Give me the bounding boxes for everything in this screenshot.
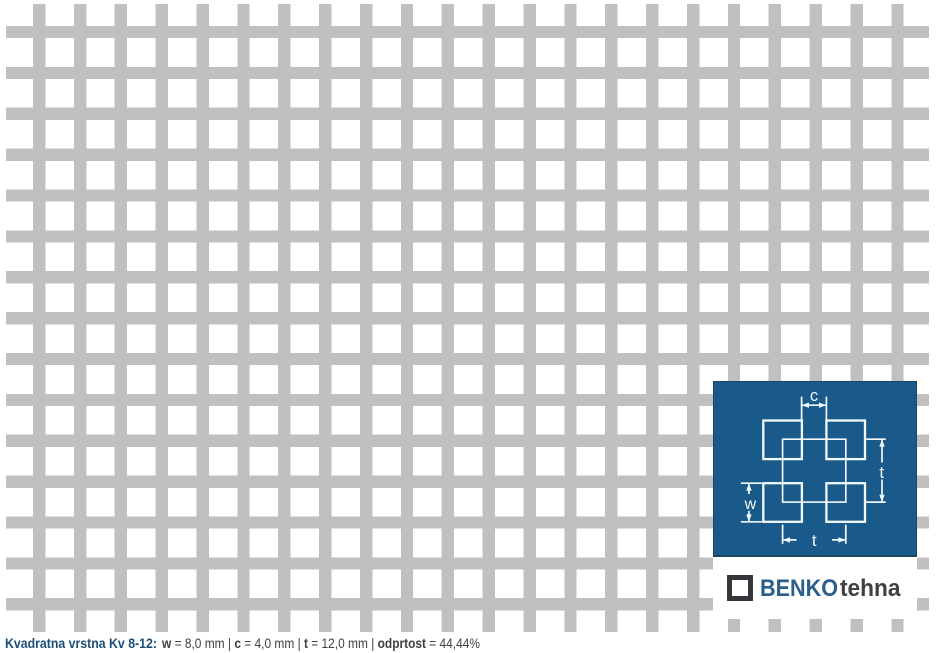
svg-text:c: c [809,387,817,405]
svg-text:t: t [879,462,884,481]
svg-text:w: w [743,495,756,512]
svg-text:t: t [812,530,817,549]
